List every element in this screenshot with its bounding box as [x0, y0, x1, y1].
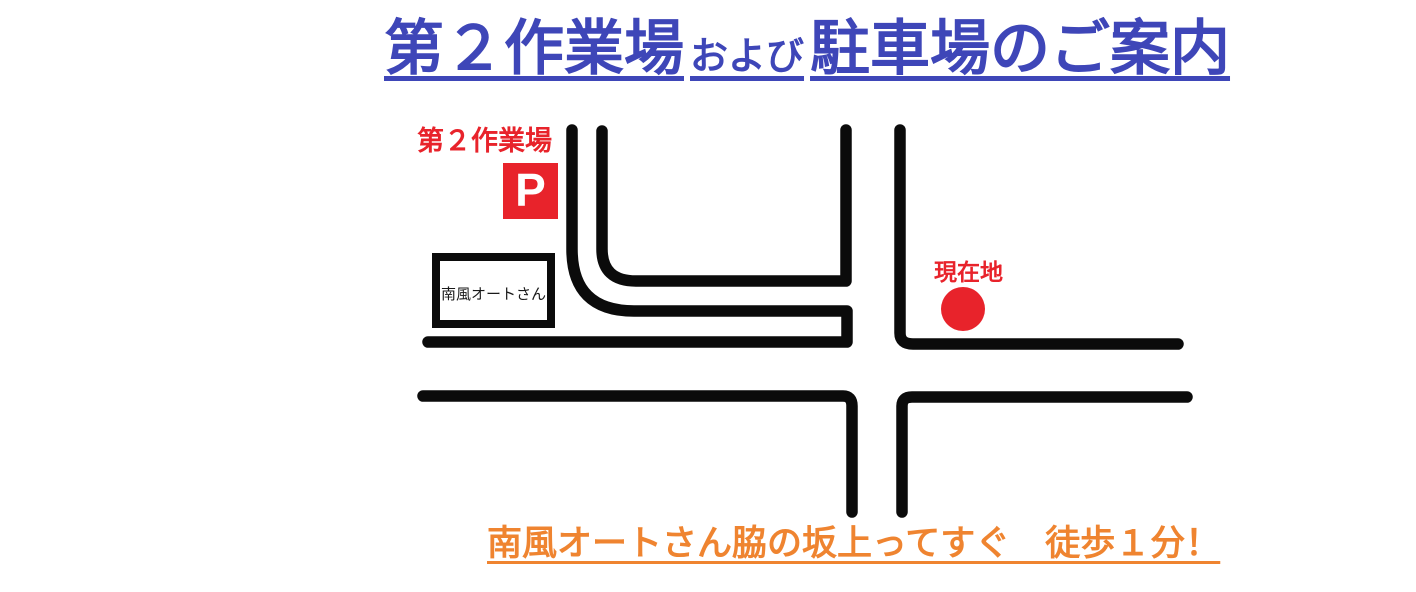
road-slope-inner-edge: [602, 130, 846, 281]
parking-letter: P: [515, 167, 546, 213]
landmark-building: 南風オートさん: [432, 253, 555, 328]
current-location-label: 現在地: [934, 261, 1003, 284]
landmark-building-label: 南風オートさん: [441, 283, 546, 304]
road-main-lower-left-edge: [423, 396, 852, 512]
parking-icon: P: [503, 163, 558, 219]
guide-map-page: 第２作業場および駐車場のご案内 第２作業場 P 南風オートさん 現在地 南風オー…: [0, 0, 1416, 592]
current-location-dot-icon: [941, 287, 985, 331]
road-map-drawing: [0, 0, 1416, 592]
workshop-label: 第２作業場: [417, 128, 552, 155]
directions-note: 南風オートさん脇の坂上ってすぐ 徒歩１分！: [487, 526, 1220, 561]
road-main-lower-right-edge: [902, 397, 1187, 512]
